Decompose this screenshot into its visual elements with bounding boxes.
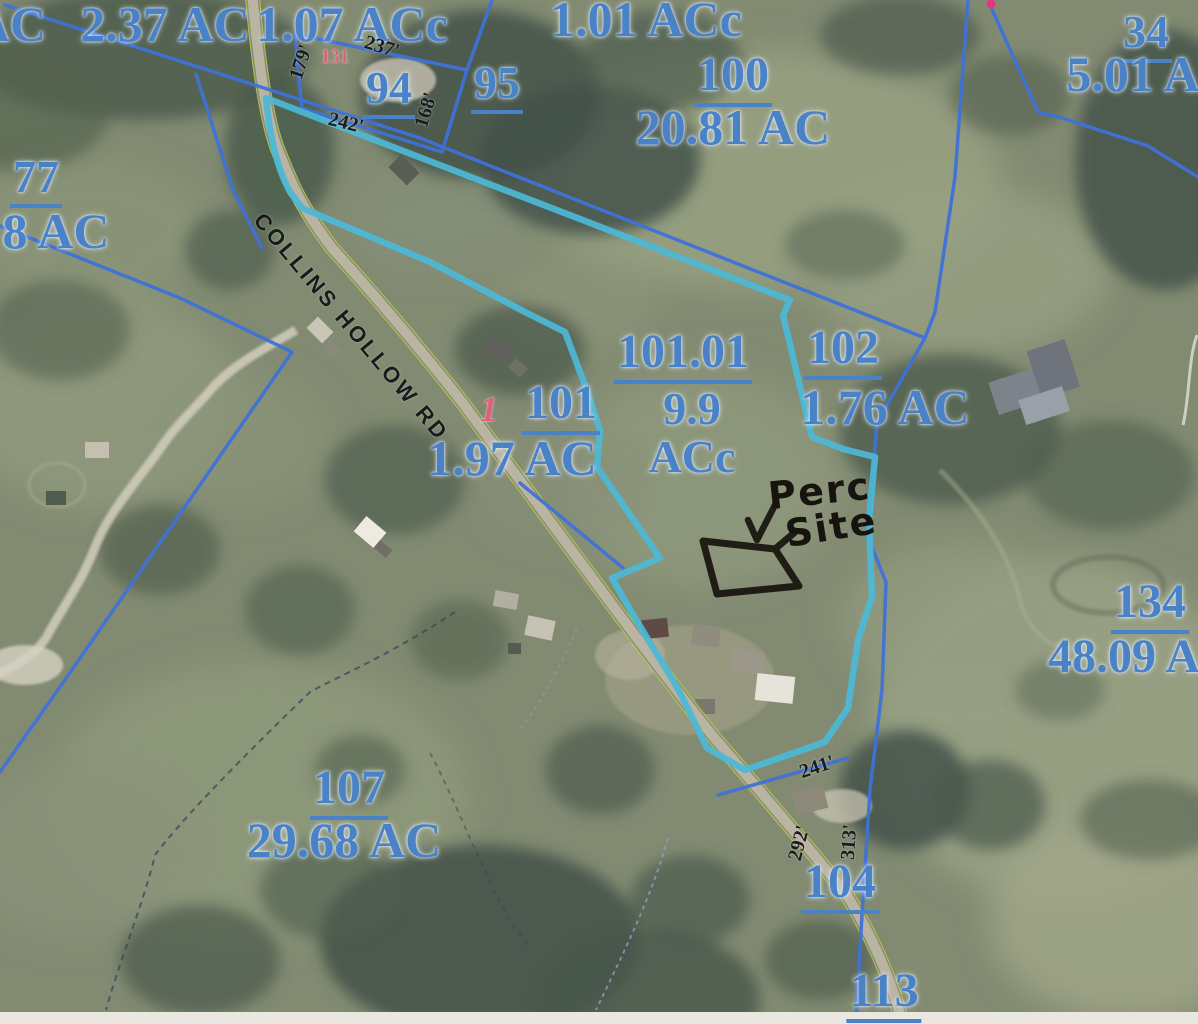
label-layer: AC 2.37 AC 1.07 ACc 1.01 ACc 34 5.01 A 7… bbox=[0, 0, 1198, 1024]
parcel-number-77: 77 bbox=[10, 154, 62, 208]
acreage-label-100: 20.81 AC bbox=[636, 102, 830, 152]
acreage-label-101-01-line1: 9.9 bbox=[663, 386, 721, 432]
parcel-number-101: 101 bbox=[522, 379, 600, 435]
acreage-label-topleft-partial: AC bbox=[0, 0, 46, 49]
red-lot-number-131: 131 bbox=[321, 48, 350, 67]
parcel-number-95: 95 bbox=[471, 60, 523, 114]
acreage-label-2-37: 2.37 AC bbox=[80, 0, 249, 49]
acreage-label-77: 8 AC bbox=[3, 206, 110, 256]
parcel-number-104: 104 bbox=[801, 858, 879, 914]
measurement-242: 242' bbox=[326, 109, 365, 137]
acreage-label-134: 48.09 A bbox=[1048, 633, 1198, 681]
parcel-number-134: 134 bbox=[1111, 578, 1189, 634]
red-lot-number-1: 1 bbox=[480, 391, 498, 427]
measurement-241: 241' bbox=[797, 752, 837, 782]
acreage-label-101-01-line2: ACc bbox=[649, 434, 736, 480]
acreage-label-107: 29.68 AC bbox=[247, 815, 441, 865]
parcel-number-101-01: 101.01 bbox=[614, 328, 752, 384]
parcel-number-113: 113 bbox=[846, 967, 921, 1023]
measurement-313: 313' bbox=[838, 824, 860, 861]
acreage-label-1-01: 1.01 ACc bbox=[550, 0, 742, 44]
parcel-number-102: 102 bbox=[804, 324, 882, 380]
parcel-number-94: 94 bbox=[363, 65, 415, 119]
acreage-label-1-07: 1.07 ACc bbox=[256, 0, 448, 49]
acreage-label-101: 1.97 AC bbox=[427, 433, 596, 483]
parcel-map: AC 2.37 AC 1.07 ACc 1.01 ACc 34 5.01 A 7… bbox=[0, 0, 1198, 1024]
acreage-label-102: 1.76 AC bbox=[800, 382, 969, 432]
road-name-label: COLLINS HOLLOW RD bbox=[248, 208, 454, 446]
measurement-168: 168' bbox=[411, 90, 441, 130]
acreage-label-34: 5.01 A bbox=[1066, 49, 1198, 99]
